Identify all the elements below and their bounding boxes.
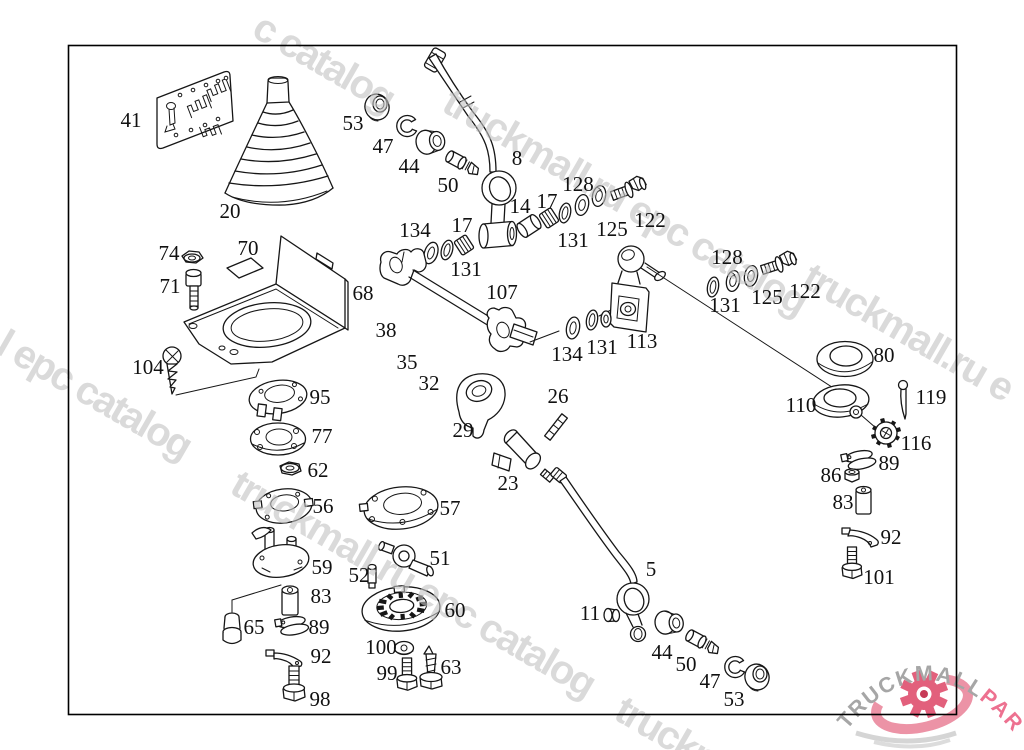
part-nut-62 — [280, 462, 301, 475]
part-label-92: 92 — [881, 525, 902, 549]
part-label-100: 100 — [365, 635, 397, 659]
part-label-68: 68 — [353, 281, 374, 305]
part-pad-70 — [227, 258, 263, 278]
part-label-89: 89 — [879, 451, 900, 475]
part-label-20: 20 — [220, 199, 241, 223]
part-label-41: 41 — [121, 108, 142, 132]
part-label-104: 104 — [132, 355, 164, 379]
part-label-83: 83 — [833, 490, 854, 514]
parts-catalog-page: TRUCKMALLPARTS — [0, 0, 1024, 750]
part-clip-92b — [266, 650, 302, 668]
part-shift-pattern-plate-41 — [157, 72, 244, 149]
exploded-parts-diagram: TRUCKMALLPARTS — [0, 0, 1024, 750]
part-label-50: 50 — [438, 173, 459, 197]
part-label-17: 17 — [452, 213, 473, 237]
part-label-32: 32 — [419, 371, 440, 395]
part-bushing-11 — [604, 609, 620, 622]
part-label-50: 50 — [676, 652, 697, 676]
part-sleeve-83b — [282, 586, 298, 615]
part-label-52: 52 — [349, 563, 370, 587]
part-ring-134b — [565, 316, 582, 340]
part-label-47: 47 — [373, 134, 394, 158]
part-label-101: 101 — [863, 565, 895, 589]
part-label-71: 71 — [160, 274, 181, 298]
part-label-44: 44 — [652, 640, 674, 664]
part-cotter-pin-119 — [899, 381, 908, 420]
part-bearing-ring-110 — [811, 382, 876, 428]
part-screw-63 — [420, 646, 442, 689]
part-pin-26 — [545, 414, 568, 440]
part-label-122: 122 — [634, 208, 666, 232]
part-label-63: 63 — [441, 655, 462, 679]
logo-shadow-swirl — [856, 733, 956, 741]
part-label-44: 44 — [399, 154, 421, 178]
part-label-65: 65 — [244, 615, 265, 639]
part-ring-77 — [251, 423, 306, 455]
part-label-47: 47 — [700, 669, 721, 693]
part-nut-86 — [845, 469, 859, 482]
watermark-text: l epc catalog — [0, 322, 199, 468]
part-label-60: 60 — [445, 598, 466, 622]
part-nut-74 — [182, 251, 203, 263]
part-label-113: 113 — [627, 329, 658, 353]
part-clip-92 — [842, 528, 878, 547]
pointer-line-104 — [176, 369, 259, 395]
part-label-128: 128 — [711, 245, 743, 269]
part-label-70: 70 — [238, 236, 259, 260]
part-label-95: 95 — [310, 385, 331, 409]
part-bearing-bracket-113 — [601, 246, 667, 332]
pointer-line-65 — [232, 585, 281, 612]
part-label-107: 107 — [486, 280, 518, 304]
part-label-98: 98 — [310, 687, 331, 711]
part-label-131: 131 — [586, 335, 618, 359]
part-flange-ring-57 — [358, 483, 440, 533]
part-label-110: 110 — [786, 393, 817, 417]
part-label-131: 131 — [557, 228, 589, 252]
part-label-57: 57 — [440, 496, 461, 520]
part-bushing-44 — [414, 127, 447, 156]
part-label-83: 83 — [311, 584, 332, 608]
part-washer-100 — [395, 642, 414, 655]
part-label-56: 56 — [313, 494, 334, 518]
part-label-51: 51 — [430, 546, 451, 570]
part-ring-131b — [558, 202, 573, 224]
part-label-5: 5 — [646, 557, 657, 581]
part-label-23: 23 — [498, 471, 519, 495]
part-label-38: 38 — [376, 318, 397, 342]
part-label-17: 17 — [537, 189, 558, 213]
part-label-35: 35 — [397, 350, 418, 374]
part-label-119: 119 — [916, 385, 947, 409]
part-bolt-101 — [842, 547, 862, 579]
part-console-bracket-68 — [184, 236, 348, 364]
part-clip-89 — [841, 448, 877, 472]
part-label-134: 134 — [551, 342, 583, 366]
part-label-8: 8 — [512, 146, 523, 170]
part-washer-ring-80 — [817, 342, 873, 377]
part-bolt-71 — [186, 270, 201, 311]
part-label-26: 26 — [548, 384, 569, 408]
part-label-11: 11 — [580, 601, 600, 625]
part-knurled-nut-17b — [454, 234, 474, 255]
part-flange-95 — [247, 377, 310, 425]
part-sleeve-83 — [856, 487, 871, 515]
part-label-131: 131 — [709, 293, 741, 317]
part-label-14: 14 — [510, 194, 532, 218]
part-label-53: 53 — [343, 111, 364, 135]
part-label-74: 74 — [159, 241, 181, 265]
part-label-86: 86 — [821, 463, 842, 487]
part-screw-104 — [163, 347, 181, 394]
part-gear-boot-20 — [225, 77, 333, 206]
part-label-125: 125 — [596, 217, 628, 241]
part-label-99: 99 — [377, 661, 398, 685]
part-castle-nut-116 — [868, 415, 905, 452]
part-bolt-99 — [397, 658, 417, 690]
part-label-89: 89 — [309, 615, 330, 639]
part-bushing-65 — [223, 613, 241, 644]
part-clip-89b — [275, 614, 310, 637]
part-label-92: 92 — [311, 644, 332, 668]
part-bushing-44b — [654, 609, 685, 636]
part-label-62: 62 — [308, 458, 329, 482]
part-label-80: 80 — [874, 343, 895, 367]
part-snap-ring-47b — [725, 657, 745, 678]
part-label-131: 131 — [450, 257, 482, 281]
part-label-125: 125 — [751, 285, 783, 309]
part-ring-131d — [585, 309, 599, 331]
watermark-text: truckm — [608, 688, 735, 750]
part-label-134: 134 — [399, 218, 431, 242]
part-label-122: 122 — [789, 279, 821, 303]
part-label-53: 53 — [724, 687, 745, 711]
part-label-29: 29 — [453, 418, 474, 442]
part-bolt-98 — [283, 666, 305, 701]
part-snap-ring-47 — [397, 116, 417, 137]
part-grommet-53b — [742, 661, 773, 693]
part-label-77: 77 — [312, 424, 333, 448]
part-label-59: 59 — [312, 555, 333, 579]
part-label-116: 116 — [901, 431, 932, 455]
part-label-128: 128 — [562, 172, 594, 196]
